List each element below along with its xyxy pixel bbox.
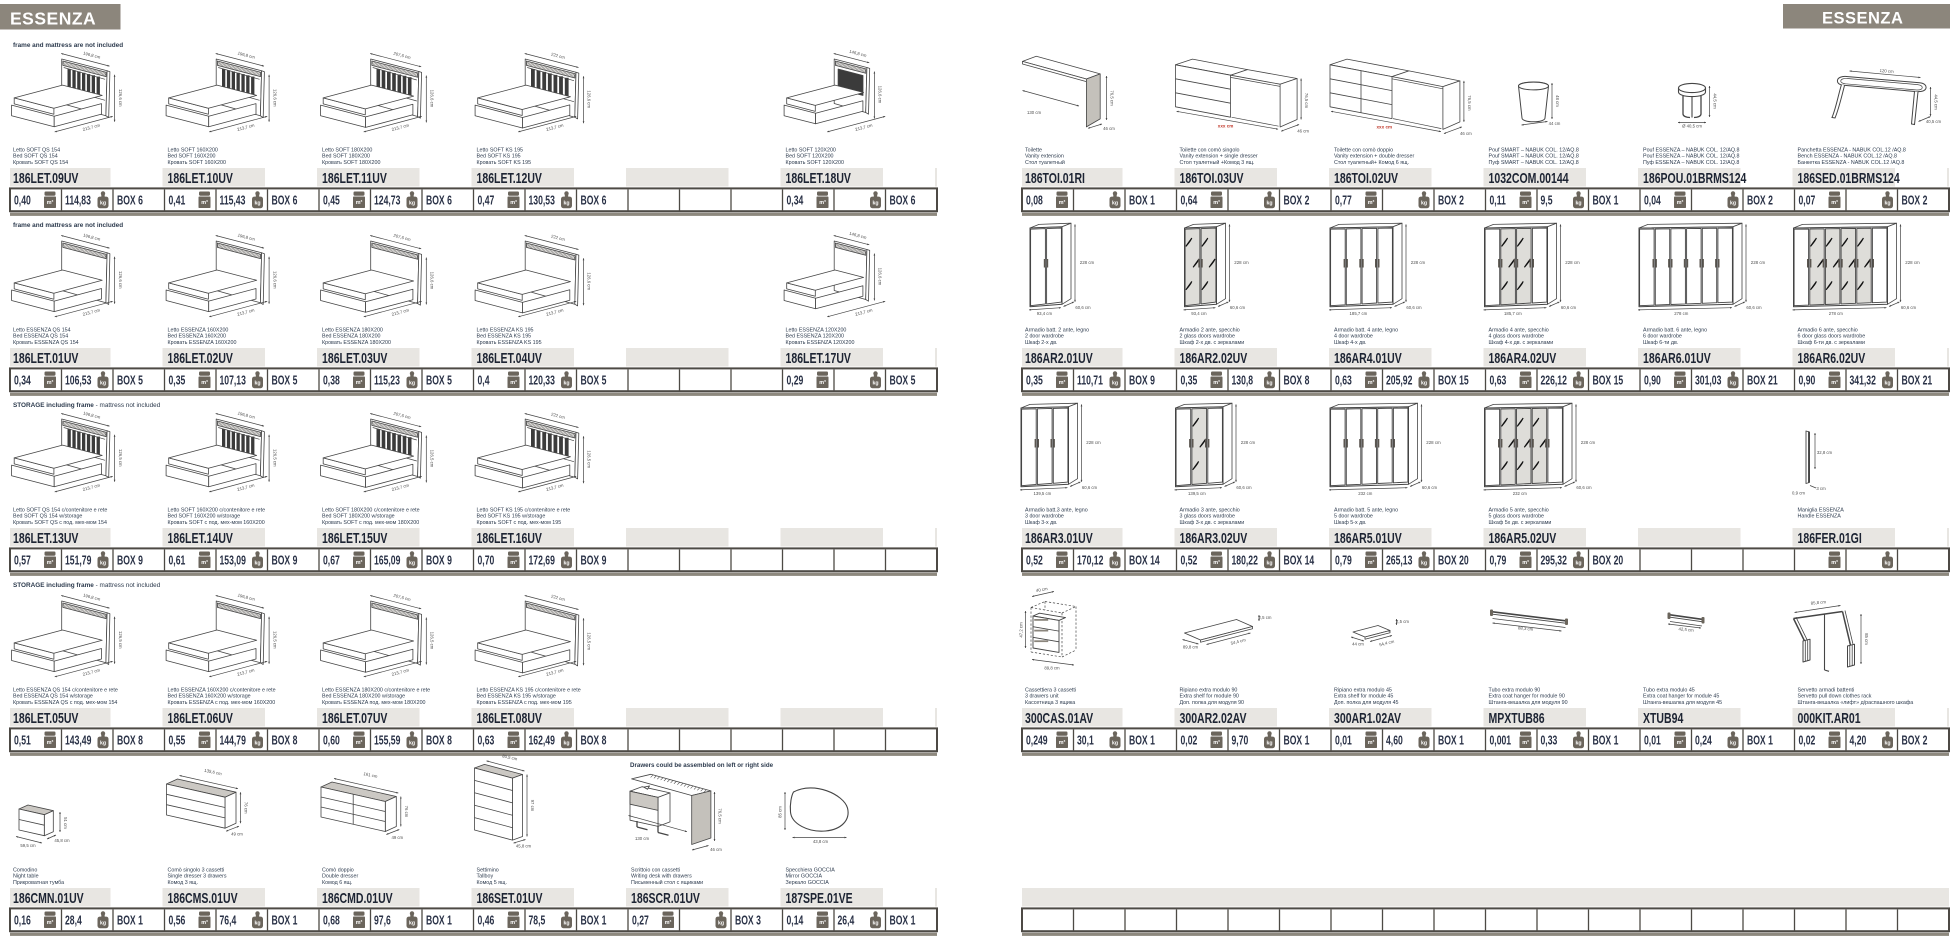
svg-text:BOX 14: BOX 14 xyxy=(1284,554,1315,568)
svg-text:126,6 cm: 126,6 cm xyxy=(587,90,592,108)
svg-text:m³: m³ xyxy=(1213,200,1220,206)
svg-text:186CMN.01UV: 186CMN.01UV xyxy=(13,889,84,906)
svg-text:186AR4.02UV: 186AR4.02UV xyxy=(1489,349,1557,366)
svg-text:STORAGE including frame - matt: STORAGE including frame - mattress not i… xyxy=(13,402,161,409)
svg-text:295,32: 295,32 xyxy=(1541,554,1567,568)
svg-text:110,71: 110,71 xyxy=(1077,374,1103,388)
svg-text:97 cm: 97 cm xyxy=(530,800,535,812)
svg-text:44 cm: 44 cm xyxy=(1549,121,1561,126)
svg-text:186AR2.02UV: 186AR2.02UV xyxy=(1180,349,1248,366)
svg-text:30,1: 30,1 xyxy=(1077,734,1094,748)
svg-text:BOX 8: BOX 8 xyxy=(272,734,298,748)
svg-text:341,32: 341,32 xyxy=(1850,374,1876,388)
svg-text:m³: m³ xyxy=(819,200,826,206)
svg-text:0,34: 0,34 xyxy=(787,194,804,208)
svg-text:0,27: 0,27 xyxy=(632,914,649,928)
svg-text:m³: m³ xyxy=(201,560,208,566)
svg-text:93,4 cm: 93,4 cm xyxy=(1037,311,1053,316)
svg-text:85 cm: 85 cm xyxy=(778,806,783,818)
svg-text:186AR6.01UV: 186AR6.01UV xyxy=(1643,349,1711,366)
svg-text:0,64: 0,64 xyxy=(1181,194,1198,208)
svg-text:130,8: 130,8 xyxy=(1232,374,1254,388)
svg-text:0,01: 0,01 xyxy=(1644,734,1661,748)
svg-text:Прикроватная тумба: Прикроватная тумба xyxy=(13,880,65,886)
svg-text:ESSENZA: ESSENZA xyxy=(1822,10,1903,28)
svg-text:frame and mattress are not in: frame and mattress are not included xyxy=(13,222,123,229)
svg-text:kg: kg xyxy=(100,561,106,567)
svg-text:155,59: 155,59 xyxy=(374,734,400,748)
svg-text:m³: m³ xyxy=(356,920,363,926)
svg-text:Шкаф 2-х дв.: Шкаф 2-х дв. xyxy=(1025,340,1058,346)
svg-text:32,8 cm: 32,8 cm xyxy=(1817,450,1833,455)
svg-text:126,6 cm: 126,6 cm xyxy=(272,271,277,289)
svg-text:45,8 cm: 45,8 cm xyxy=(54,838,70,843)
svg-text:BOX 5: BOX 5 xyxy=(581,374,607,388)
svg-text:BOX 1: BOX 1 xyxy=(117,914,143,928)
svg-text:76,5 cm: 76,5 cm xyxy=(1467,95,1472,111)
svg-text:kg: kg xyxy=(1575,741,1581,747)
svg-text:Шкаф 5х дв. с зеркалами: Шкаф 5х дв. с зеркалами xyxy=(1489,520,1552,526)
svg-text:0,14: 0,14 xyxy=(787,914,804,928)
svg-text:BOX 21: BOX 21 xyxy=(1902,374,1933,388)
svg-text:85 cm: 85 cm xyxy=(1864,633,1869,645)
svg-text:0,11: 0,11 xyxy=(1490,194,1506,208)
svg-text:kg: kg xyxy=(1575,201,1581,207)
svg-text:0,35: 0,35 xyxy=(1026,374,1043,388)
svg-text:300CAS.01AV: 300CAS.01AV xyxy=(1025,709,1094,726)
svg-text:Зеркало GOCCIA: Зеркало GOCCIA xyxy=(786,880,830,886)
svg-text:Шкаф 3-х дв. с зеркалами: Шкаф 3-х дв. с зеркалами xyxy=(1180,520,1245,526)
svg-text:265,13: 265,13 xyxy=(1386,554,1412,568)
svg-text:46 cm: 46 cm xyxy=(1297,129,1309,134)
svg-text:m³: m³ xyxy=(1831,200,1838,206)
svg-text:130,53: 130,53 xyxy=(529,194,555,208)
svg-text:186LET.14UV: 186LET.14UV xyxy=(168,529,234,546)
svg-text:126,5 cm: 126,5 cm xyxy=(118,631,123,649)
svg-text:9,5: 9,5 xyxy=(1541,194,1553,208)
svg-text:Шкаф 6-ти дв.: Шкаф 6-ти дв. xyxy=(1643,340,1679,346)
svg-text:226,12: 226,12 xyxy=(1541,374,1567,388)
svg-text:44,5 cm: 44,5 cm xyxy=(1934,94,1939,110)
svg-text:139,5 cm: 139,5 cm xyxy=(1188,491,1206,496)
svg-text:m³: m³ xyxy=(201,920,208,926)
svg-text:186POU.01BRMS124: 186POU.01BRMS124 xyxy=(1643,169,1746,186)
svg-text:Кровать ESSENZA QS с под. мех-: Кровать ESSENZA QS с под. мех-мом 154 xyxy=(13,700,117,706)
svg-text:0,47: 0,47 xyxy=(478,194,495,208)
svg-text:Кровать ESSENZA с под. мех-мо: Кровать ESSENZA с под. мех-мом 160X200 xyxy=(168,700,276,706)
svg-text:78,5: 78,5 xyxy=(529,914,546,928)
svg-text:m³: m³ xyxy=(47,740,54,746)
svg-text:300AR1.02AV: 300AR1.02AV xyxy=(1334,709,1401,726)
svg-text:BOX 9: BOX 9 xyxy=(1129,374,1155,388)
svg-text:Кассетница 3 ящика: Кассетница 3 ящика xyxy=(1025,700,1076,706)
svg-text:115,23: 115,23 xyxy=(374,374,400,388)
svg-text:kg: kg xyxy=(1421,381,1427,387)
svg-text:Кровать SOFT KS 195: Кровать SOFT KS 195 xyxy=(477,160,532,166)
svg-text:BOX 1: BOX 1 xyxy=(890,914,916,928)
svg-text:frame and mattress are not in: frame and mattress are not included xyxy=(13,42,123,49)
svg-text:kg: kg xyxy=(563,561,569,567)
svg-text:144,79: 144,79 xyxy=(220,734,246,748)
svg-text:Шкаф 4-х дв. с зеркалами: Шкаф 4-х дв. с зеркалами xyxy=(1489,340,1554,346)
svg-text:BOX 1: BOX 1 xyxy=(1593,194,1619,208)
svg-text:300AR2.02AV: 300AR2.02AV xyxy=(1180,709,1247,726)
svg-text:0,55: 0,55 xyxy=(169,734,186,748)
svg-text:m³: m³ xyxy=(1368,380,1375,386)
svg-text:BOX 6: BOX 6 xyxy=(117,194,143,208)
svg-text:0,90: 0,90 xyxy=(1644,374,1661,388)
svg-text:0,61: 0,61 xyxy=(169,554,186,568)
svg-text:126,5 cm: 126,5 cm xyxy=(430,450,435,468)
svg-text:Кровать ESSENZA KS 195: Кровать ESSENZA KS 195 xyxy=(477,340,542,346)
svg-text:kg: kg xyxy=(1730,741,1736,747)
svg-text:m³: m³ xyxy=(356,380,363,386)
svg-text:4,60: 4,60 xyxy=(1386,734,1403,748)
svg-text:232 cm: 232 cm xyxy=(1358,491,1373,496)
svg-text:186CMD.01UV: 186CMD.01UV xyxy=(322,889,393,906)
svg-text:BOX 5: BOX 5 xyxy=(890,374,916,388)
svg-text:186SED.01BRMS124: 186SED.01BRMS124 xyxy=(1798,169,1900,186)
svg-text:BOX 8: BOX 8 xyxy=(581,734,607,748)
svg-text:228 cm: 228 cm xyxy=(1080,260,1095,265)
svg-text:kg: kg xyxy=(1884,741,1890,747)
svg-text:kg: kg xyxy=(563,921,569,927)
svg-text:0,79: 0,79 xyxy=(1490,554,1507,568)
svg-text:107,13: 107,13 xyxy=(220,374,246,388)
svg-text:BOX 9: BOX 9 xyxy=(581,554,607,568)
svg-text:0,9 cm: 0,9 cm xyxy=(1792,491,1805,496)
svg-text:BOX 15: BOX 15 xyxy=(1438,374,1469,388)
svg-text:153,09: 153,09 xyxy=(220,554,246,568)
svg-text:m³: m³ xyxy=(1213,740,1220,746)
svg-text:0,79: 0,79 xyxy=(1335,554,1352,568)
svg-text:0,52: 0,52 xyxy=(1026,554,1043,568)
svg-text:126,6 cm: 126,6 cm xyxy=(878,86,883,104)
svg-text:BOX 1: BOX 1 xyxy=(1593,734,1619,748)
svg-text:0,34: 0,34 xyxy=(14,374,31,388)
svg-text:BOX 2: BOX 2 xyxy=(1902,734,1928,748)
svg-text:126,6 cm: 126,6 cm xyxy=(430,90,435,108)
svg-text:kg: kg xyxy=(1884,381,1890,387)
svg-text:BOX 5: BOX 5 xyxy=(426,374,452,388)
svg-text:kg: kg xyxy=(1730,201,1736,207)
svg-text:m³: m³ xyxy=(1677,380,1684,386)
svg-text:2,5 cm: 2,5 cm xyxy=(1259,615,1272,620)
svg-text:186LET.11UV: 186LET.11UV xyxy=(322,169,387,186)
svg-text:172,69: 172,69 xyxy=(529,554,555,568)
svg-text:m³: m³ xyxy=(1522,740,1529,746)
svg-text:kg: kg xyxy=(254,381,260,387)
svg-text:Кровать SOFT QS с под. мех-мом: Кровать SOFT QS с под. мех-мом 154 xyxy=(13,520,107,526)
svg-text:m³: m³ xyxy=(1522,380,1529,386)
svg-text:Стол туалетный +Комод 3 ящ.: Стол туалетный +Комод 3 ящ. xyxy=(1180,159,1255,166)
svg-text:m³: m³ xyxy=(819,920,826,926)
svg-text:kg: kg xyxy=(1421,201,1427,207)
svg-text:m³: m³ xyxy=(1831,560,1838,566)
svg-text:Кровать SOFT с под. мех-мом 18: Кровать SOFT с под. мех-мом 180X200 xyxy=(322,520,419,526)
svg-text:126,6 cm: 126,6 cm xyxy=(272,89,277,107)
svg-text:43,8 cm: 43,8 cm xyxy=(813,839,829,844)
svg-text:228 cm: 228 cm xyxy=(1905,260,1920,265)
svg-text:76,5 cm: 76,5 cm xyxy=(718,808,723,824)
svg-text:1032COM.00144: 1032COM.00144 xyxy=(1489,169,1569,186)
svg-text:kg: kg xyxy=(1266,561,1272,567)
svg-text:m³: m³ xyxy=(1831,380,1838,386)
svg-text:m³: m³ xyxy=(1677,200,1684,206)
svg-text:0,4: 0,4 xyxy=(478,374,490,388)
svg-text:186AR5.02UV: 186AR5.02UV xyxy=(1489,529,1557,546)
svg-text:m³: m³ xyxy=(201,200,208,206)
svg-text:m³: m³ xyxy=(356,200,363,206)
svg-text:0,70: 0,70 xyxy=(478,554,495,568)
svg-text:m³: m³ xyxy=(201,380,208,386)
svg-text:m³: m³ xyxy=(510,920,517,926)
svg-text:0,02: 0,02 xyxy=(1799,734,1816,748)
svg-text:m³: m³ xyxy=(201,740,208,746)
svg-text:0,90: 0,90 xyxy=(1799,374,1816,388)
svg-text:186LET.13UV: 186LET.13UV xyxy=(13,529,79,546)
svg-text:m³: m³ xyxy=(1831,740,1838,746)
svg-text:BOX 9: BOX 9 xyxy=(272,554,298,568)
svg-text:186LET.10UV: 186LET.10UV xyxy=(168,169,234,186)
svg-text:0,08: 0,08 xyxy=(1026,194,1043,208)
svg-text:BOX 2: BOX 2 xyxy=(1438,194,1464,208)
svg-text:130 cm: 130 cm xyxy=(1027,110,1042,115)
svg-text:228 cm: 228 cm xyxy=(1565,260,1580,265)
svg-text:kg: kg xyxy=(1421,741,1427,747)
svg-text:46 cm: 46 cm xyxy=(1460,131,1472,136)
svg-text:0,45: 0,45 xyxy=(323,194,340,208)
svg-text:kg: kg xyxy=(1575,381,1581,387)
svg-text:Доп. полка для модуля 90: Доп. полка для модуля 90 xyxy=(1180,700,1245,706)
svg-text:170,12: 170,12 xyxy=(1077,554,1103,568)
svg-text:kg: kg xyxy=(254,201,260,207)
svg-text:Кровать SOFT с под. мех-мом 16: Кровать SOFT с под. мех-мом 160X200 xyxy=(168,520,265,526)
svg-text:76,5 cm: 76,5 cm xyxy=(1304,93,1309,109)
svg-text:143,49: 143,49 xyxy=(65,734,91,748)
svg-text:186FER.01GI: 186FER.01GI xyxy=(1798,529,1862,546)
svg-text:m³: m³ xyxy=(1059,380,1066,386)
svg-text:151,79: 151,79 xyxy=(65,554,91,568)
svg-text:m³: m³ xyxy=(1059,560,1066,566)
svg-text:126,5 cm: 126,5 cm xyxy=(587,632,592,650)
svg-text:205,92: 205,92 xyxy=(1386,374,1412,388)
svg-text:kg: kg xyxy=(1421,561,1427,567)
svg-text:97,6: 97,6 xyxy=(374,914,391,928)
svg-text:BOX 9: BOX 9 xyxy=(117,554,143,568)
svg-text:162,49: 162,49 xyxy=(529,734,555,748)
svg-text:186LET.15UV: 186LET.15UV xyxy=(322,529,388,546)
svg-text:Комод 6 ящ.: Комод 6 ящ. xyxy=(322,880,353,886)
svg-text:60,6 cm: 60,6 cm xyxy=(1422,485,1438,490)
svg-text:BOX 14: BOX 14 xyxy=(1129,554,1160,568)
svg-text:60,6 cm: 60,6 cm xyxy=(1082,485,1098,490)
svg-text:Кровать ESSENZA 160X200: Кровать ESSENZA 160X200 xyxy=(168,340,237,346)
svg-text:186LET.06UV: 186LET.06UV xyxy=(168,709,234,726)
svg-text:Кровать ESSENZA 180X200: Кровать ESSENZA 180X200 xyxy=(322,340,391,346)
svg-text:m³: m³ xyxy=(47,560,54,566)
svg-text:m³: m³ xyxy=(1522,200,1529,206)
svg-text:BOX 1: BOX 1 xyxy=(1129,734,1155,748)
svg-text:BOX 20: BOX 20 xyxy=(1438,554,1469,568)
svg-text:Кровать SOFT с под. мех-мом 19: Кровать SOFT с под. мех-мом 195 xyxy=(477,520,562,526)
svg-text:Пуф SMART – NABUK COL. 12/AQ.8: Пуф SMART – NABUK COL. 12/AQ.8 xyxy=(1489,160,1579,166)
svg-text:89,8 cm: 89,8 cm xyxy=(1044,666,1060,671)
svg-text:60,6 cm: 60,6 cm xyxy=(1576,485,1592,490)
svg-text:186AR3.02UV: 186AR3.02UV xyxy=(1180,529,1248,546)
svg-text:0,46: 0,46 xyxy=(478,914,495,928)
svg-text:60,6 cm: 60,6 cm xyxy=(1561,305,1577,310)
svg-text:Штанга-вешалка «лифт» д/распаш: Штанга-вешалка «лифт» д/распашного шкафа xyxy=(1798,700,1915,706)
svg-text:187SPE.01VE: 187SPE.01VE xyxy=(786,889,853,906)
svg-text:9,70: 9,70 xyxy=(1232,734,1249,748)
svg-text:kg: kg xyxy=(1112,561,1118,567)
svg-text:BOX 6: BOX 6 xyxy=(426,194,452,208)
svg-text:228 cm: 228 cm xyxy=(1411,260,1426,265)
svg-text:kg: kg xyxy=(1884,201,1890,207)
svg-text:Кровать ESSENZA 120X200: Кровать ESSENZA 120X200 xyxy=(786,340,855,346)
svg-text:89,8 cm: 89,8 cm xyxy=(1183,645,1199,650)
svg-text:BOX 1: BOX 1 xyxy=(1747,734,1773,748)
svg-text:Шкаф 2-х дв. с зеркалами: Шкаф 2-х дв. с зеркалами xyxy=(1180,340,1245,346)
svg-text:228 cm: 228 cm xyxy=(1581,440,1596,445)
svg-text:kg: kg xyxy=(1266,741,1272,747)
svg-text:126,6 cm: 126,6 cm xyxy=(118,89,123,107)
svg-text:Шкаф 6-ти дв. с зеркалами: Шкаф 6-ти дв. с зеркалами xyxy=(1798,340,1865,346)
svg-text:46 cm: 46 cm xyxy=(1103,126,1115,131)
svg-text:228 cm: 228 cm xyxy=(1751,260,1766,265)
svg-text:BOX 2: BOX 2 xyxy=(1747,194,1773,208)
svg-text:26,4: 26,4 xyxy=(838,914,855,928)
svg-text:186LET.16UV: 186LET.16UV xyxy=(477,529,543,546)
svg-text:126,5 cm: 126,5 cm xyxy=(272,631,277,649)
svg-text:40,5 cm: 40,5 cm xyxy=(1926,119,1942,124)
svg-text:0,41: 0,41 xyxy=(169,194,186,208)
svg-text:m³: m³ xyxy=(1368,560,1375,566)
svg-text:Handle ESSENZA: Handle ESSENZA xyxy=(1798,513,1842,519)
svg-text:m³: m³ xyxy=(1213,380,1220,386)
svg-text:186LET.05UV: 186LET.05UV xyxy=(13,709,79,726)
svg-text:kg: kg xyxy=(1112,381,1118,387)
svg-text:m³: m³ xyxy=(1368,740,1375,746)
svg-text:kg: kg xyxy=(872,381,878,387)
svg-text:0,249: 0,249 xyxy=(1026,734,1048,748)
svg-text:Ø 40,5 cm: Ø 40,5 cm xyxy=(1682,124,1702,129)
svg-text:130 cm: 130 cm xyxy=(635,836,650,841)
svg-text:BOX 1: BOX 1 xyxy=(581,914,607,928)
svg-text:kg: kg xyxy=(409,381,415,387)
svg-text:m³: m³ xyxy=(47,200,54,206)
svg-text:0,57: 0,57 xyxy=(14,554,31,568)
svg-text:Кровать SOFT 180X200: Кровать SOFT 180X200 xyxy=(322,160,380,166)
svg-text:186AR3.01UV: 186AR3.01UV xyxy=(1025,529,1093,546)
svg-text:228 cm: 228 cm xyxy=(1086,440,1101,445)
svg-text:Банкетка ESSENZA - NABUK COL.1: Банкетка ESSENZA - NABUK COL.12 /AQ.8 xyxy=(1798,160,1905,166)
svg-text:Стол туалетный+ Комод 6 ящ.: Стол туалетный+ Комод 6 ящ. xyxy=(1334,159,1409,166)
svg-text:kg: kg xyxy=(409,561,415,567)
svg-text:186AR6.02UV: 186AR6.02UV xyxy=(1798,349,1866,366)
svg-text:186LET.09UV: 186LET.09UV xyxy=(13,169,79,186)
svg-text:186LET.17UV: 186LET.17UV xyxy=(786,349,852,366)
svg-text:278 cm: 278 cm xyxy=(1674,311,1689,316)
svg-text:BOX 20: BOX 20 xyxy=(1593,554,1624,568)
svg-text:115,43: 115,43 xyxy=(220,194,246,208)
svg-text:Доп. полка для модуля 45: Доп. полка для модуля 45 xyxy=(1334,700,1399,706)
svg-text:186AR2.01UV: 186AR2.01UV xyxy=(1025,349,1093,366)
svg-text:59,5 cm: 59,5 cm xyxy=(20,843,36,848)
svg-text:Drawers could be assembled on: Drawers could be assembled on left or ri… xyxy=(630,762,774,769)
svg-text:228 cm: 228 cm xyxy=(1241,440,1256,445)
svg-text:60,6 cm: 60,6 cm xyxy=(1075,305,1091,310)
svg-text:76,5 cm: 76,5 cm xyxy=(1110,90,1115,106)
svg-text:126,6 cm: 126,6 cm xyxy=(878,268,883,286)
svg-text:m³: m³ xyxy=(1213,560,1220,566)
svg-text:186LET.03UV: 186LET.03UV xyxy=(322,349,388,366)
svg-text:BOX 8: BOX 8 xyxy=(1284,374,1310,388)
svg-text:Кровать ESSENZA с под. мех-мом: Кровать ESSENZA с под. мех-мом 195 xyxy=(477,700,572,706)
svg-text:228 cm: 228 cm xyxy=(1234,260,1249,265)
svg-text:m³: m³ xyxy=(819,380,826,386)
svg-text:BOX 3: BOX 3 xyxy=(735,914,761,928)
svg-text:m³: m³ xyxy=(47,380,54,386)
svg-text:0,63: 0,63 xyxy=(478,734,495,748)
svg-text:BOX 1: BOX 1 xyxy=(1284,734,1310,748)
svg-text:m³: m³ xyxy=(510,560,517,566)
svg-text:kg: kg xyxy=(409,921,415,927)
svg-text:xxx cm: xxx cm xyxy=(1218,124,1234,129)
svg-text:126,5 cm: 126,5 cm xyxy=(272,449,277,467)
svg-text:228 cm: 228 cm xyxy=(1426,440,1441,445)
svg-text:2,5 cm: 2,5 cm xyxy=(1396,619,1409,624)
svg-text:kg: kg xyxy=(1575,561,1581,567)
svg-text:BOX 6: BOX 6 xyxy=(272,194,298,208)
svg-text:m³: m³ xyxy=(1368,200,1375,206)
svg-text:XTUB94: XTUB94 xyxy=(1643,709,1683,726)
svg-text:0,33: 0,33 xyxy=(1541,734,1558,748)
svg-text:114,83: 114,83 xyxy=(65,194,91,208)
svg-text:186SCR.01UV: 186SCR.01UV xyxy=(631,889,700,906)
svg-text:kg: kg xyxy=(1730,381,1736,387)
svg-text:186CMS.01UV: 186CMS.01UV xyxy=(168,889,239,906)
svg-text:kg: kg xyxy=(1112,741,1118,747)
svg-text:BOX 1: BOX 1 xyxy=(1438,734,1464,748)
svg-text:186LET.04UV: 186LET.04UV xyxy=(477,349,543,366)
svg-text:28,4: 28,4 xyxy=(65,914,82,928)
svg-text:BOX 1: BOX 1 xyxy=(272,914,298,928)
svg-text:kg: kg xyxy=(563,381,569,387)
svg-text:49 cm: 49 cm xyxy=(231,832,243,837)
svg-text:186AR5.01UV: 186AR5.01UV xyxy=(1334,529,1402,546)
svg-text:60,6 cm: 60,6 cm xyxy=(1746,305,1762,310)
svg-text:0,56: 0,56 xyxy=(169,914,186,928)
svg-text:Кровать SOFT 160X200: Кровать SOFT 160X200 xyxy=(168,160,226,166)
svg-text:kg: kg xyxy=(100,741,106,747)
svg-text:BOX 2: BOX 2 xyxy=(1902,194,1928,208)
svg-text:120,33: 120,33 xyxy=(529,374,555,388)
svg-text:m³: m³ xyxy=(665,920,672,926)
svg-text:0,38: 0,38 xyxy=(323,374,340,388)
svg-text:186TOI.02UV: 186TOI.02UV xyxy=(1334,169,1398,186)
svg-text:0,16: 0,16 xyxy=(14,914,31,928)
svg-text:BOX 8: BOX 8 xyxy=(117,734,143,748)
svg-text:301,03: 301,03 xyxy=(1695,374,1721,388)
svg-text:Шкаф 3-х дв.: Шкаф 3-х дв. xyxy=(1025,520,1058,526)
svg-text:0,24: 0,24 xyxy=(1695,734,1712,748)
svg-text:0,07: 0,07 xyxy=(1799,194,1816,208)
svg-text:m³: m³ xyxy=(1677,740,1684,746)
svg-text:kg: kg xyxy=(100,381,106,387)
svg-text:186TOI.01RI: 186TOI.01RI xyxy=(1025,169,1085,186)
